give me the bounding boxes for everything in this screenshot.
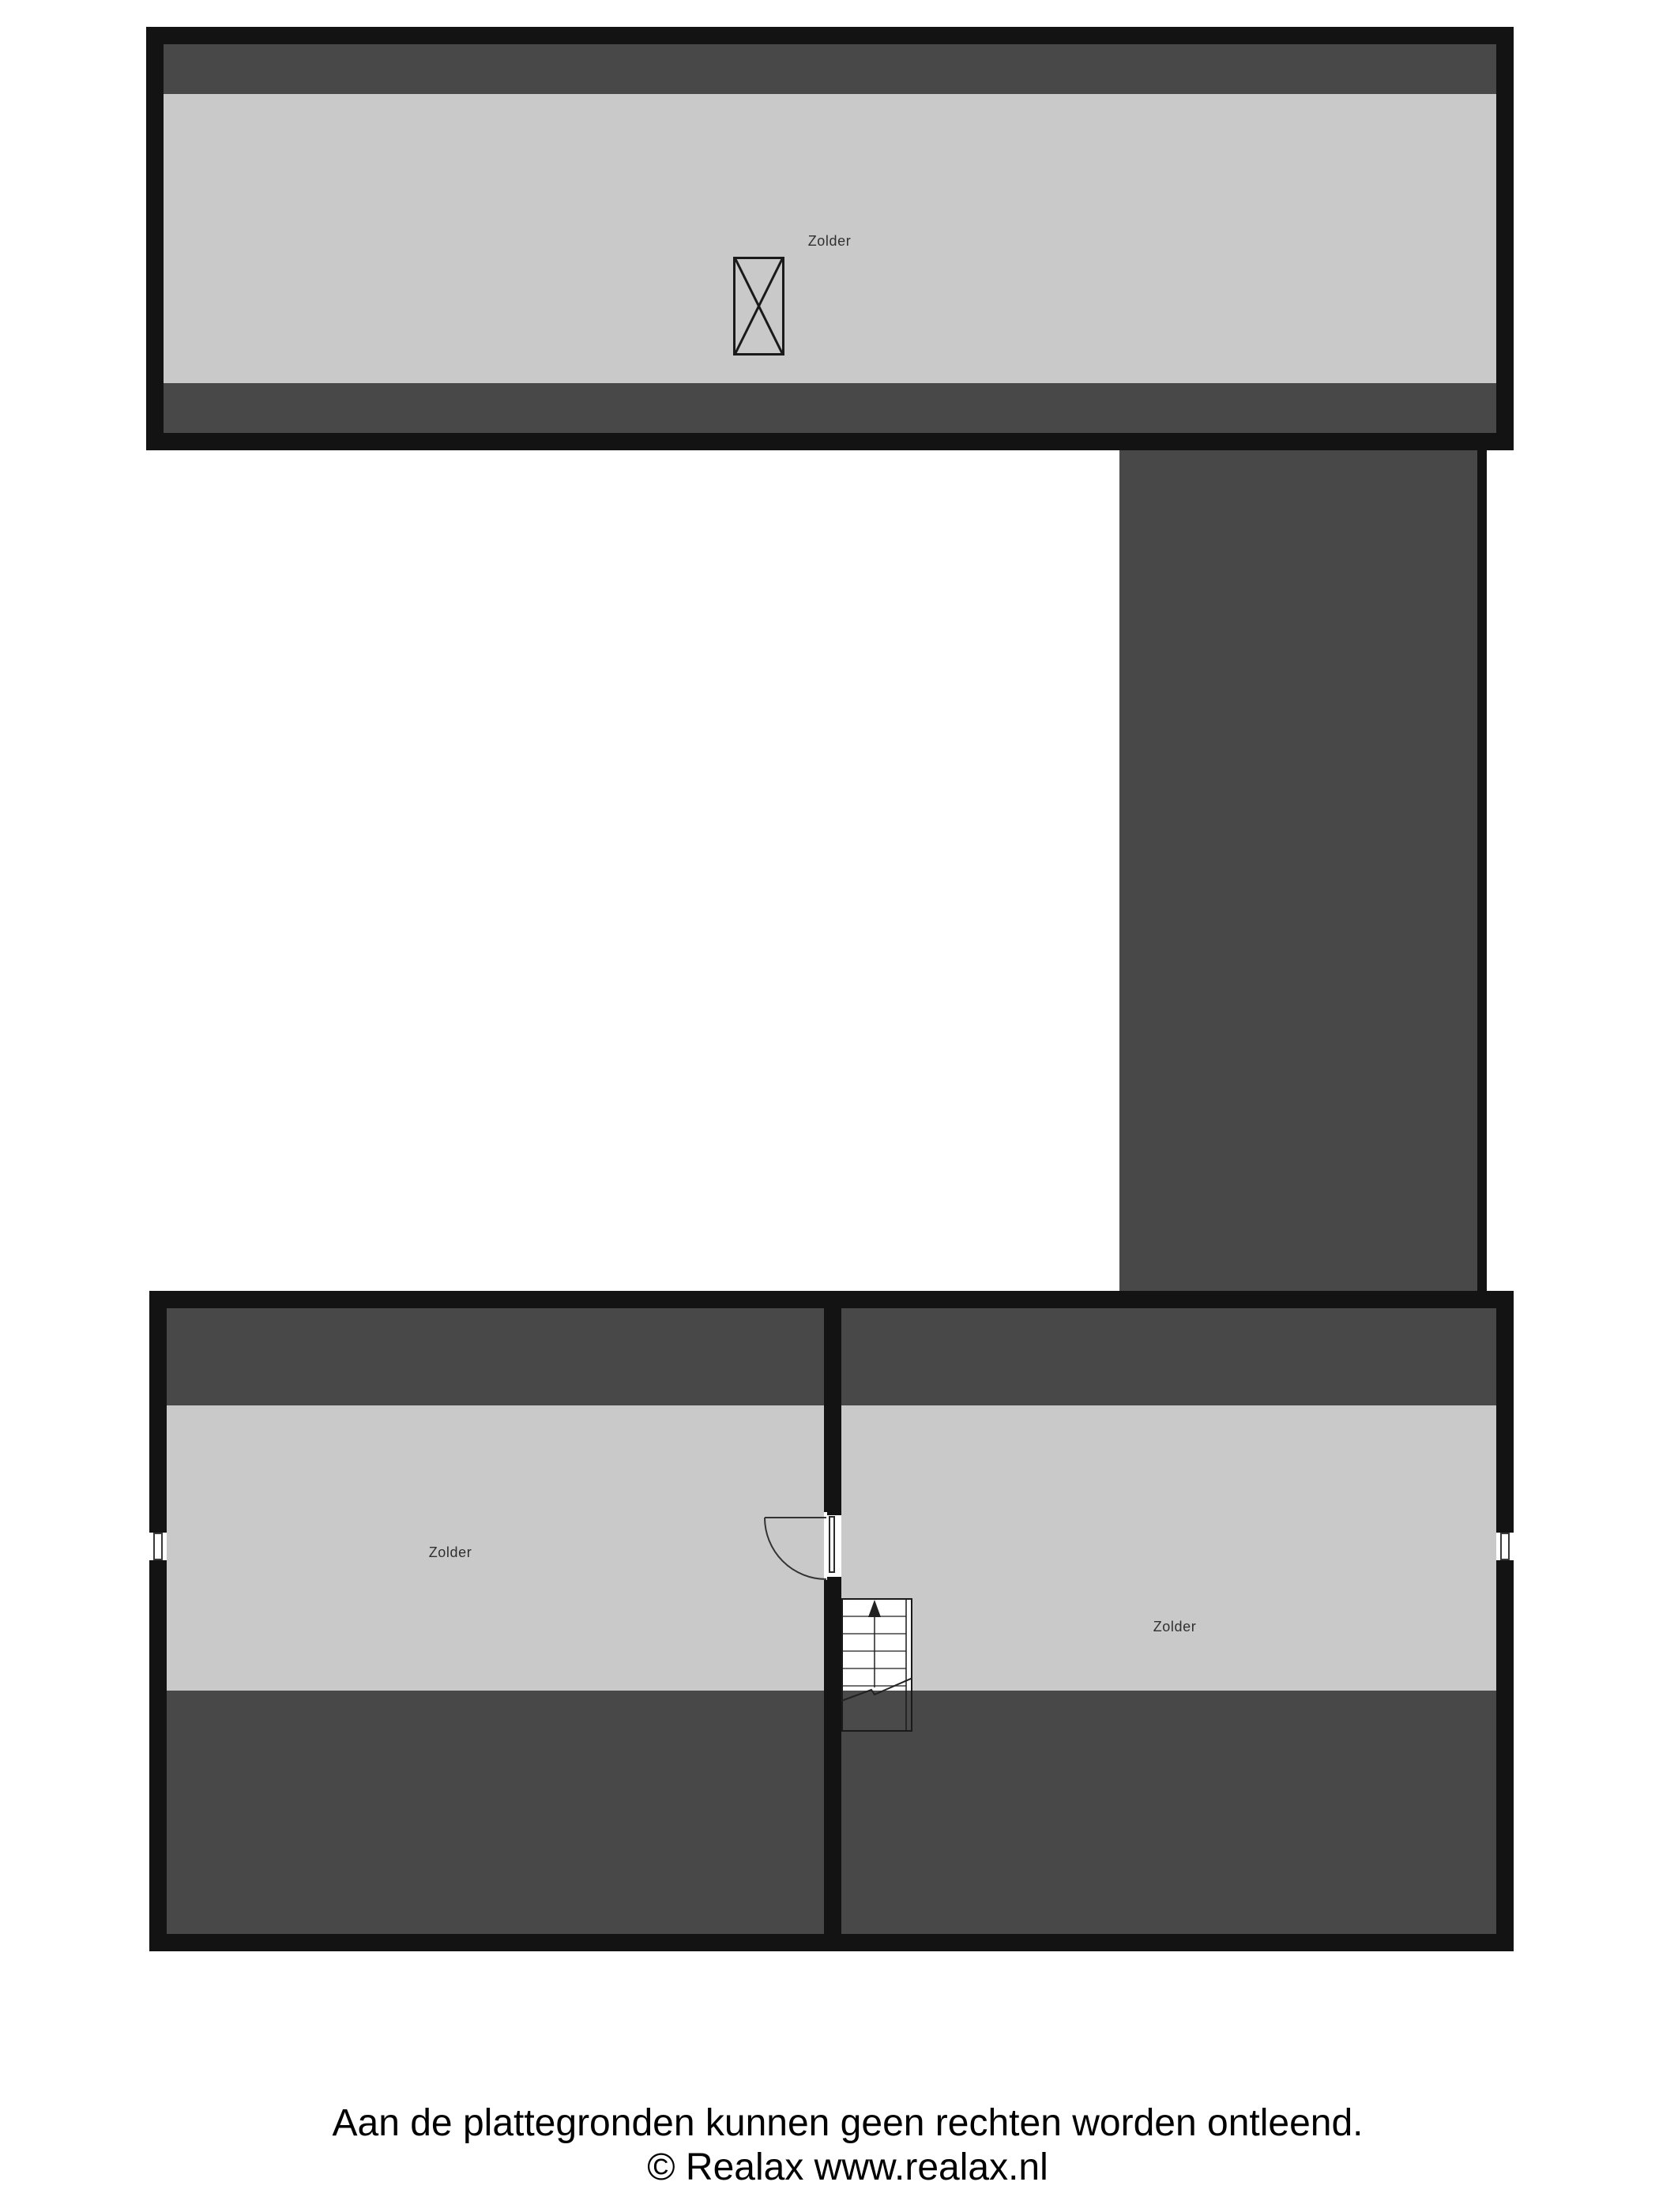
- room-label-bottom-right: Zolder: [1088, 1619, 1262, 1635]
- corridor-edge-line: [1477, 450, 1487, 1291]
- corridor: [1119, 450, 1477, 1291]
- footer-disclaimer: Aan de plattegronden kunnen geen rechten…: [18, 2101, 1659, 2146]
- chimney-icon: [733, 257, 784, 355]
- window-right-icon: [1500, 1533, 1510, 1560]
- window-left-icon: [153, 1533, 163, 1560]
- room-label-bottom-left: Zolder: [363, 1544, 537, 1561]
- door-swing-icon: [758, 1509, 831, 1585]
- footer-copyright: © Realax www.realax.nl: [18, 2146, 1659, 2190]
- interior-wall: [824, 1291, 841, 1951]
- window-left: [149, 1530, 167, 1563]
- top-section-roof-slope-bottom: [164, 383, 1496, 433]
- window-right: [1496, 1530, 1514, 1563]
- top-section-roof-slope-top: [164, 44, 1496, 94]
- stairs-icon: [841, 1598, 912, 1732]
- floorplan-canvas: Zolder Zolder Zolder Aan de plattegronde…: [0, 0, 1659, 2212]
- window-right-cap-bottom: [1496, 1560, 1514, 1563]
- room-label-top: Zolder: [743, 233, 916, 250]
- window-left-cap-bottom: [149, 1560, 167, 1563]
- footer: Aan de plattegronden kunnen geen rechten…: [18, 2101, 1659, 2189]
